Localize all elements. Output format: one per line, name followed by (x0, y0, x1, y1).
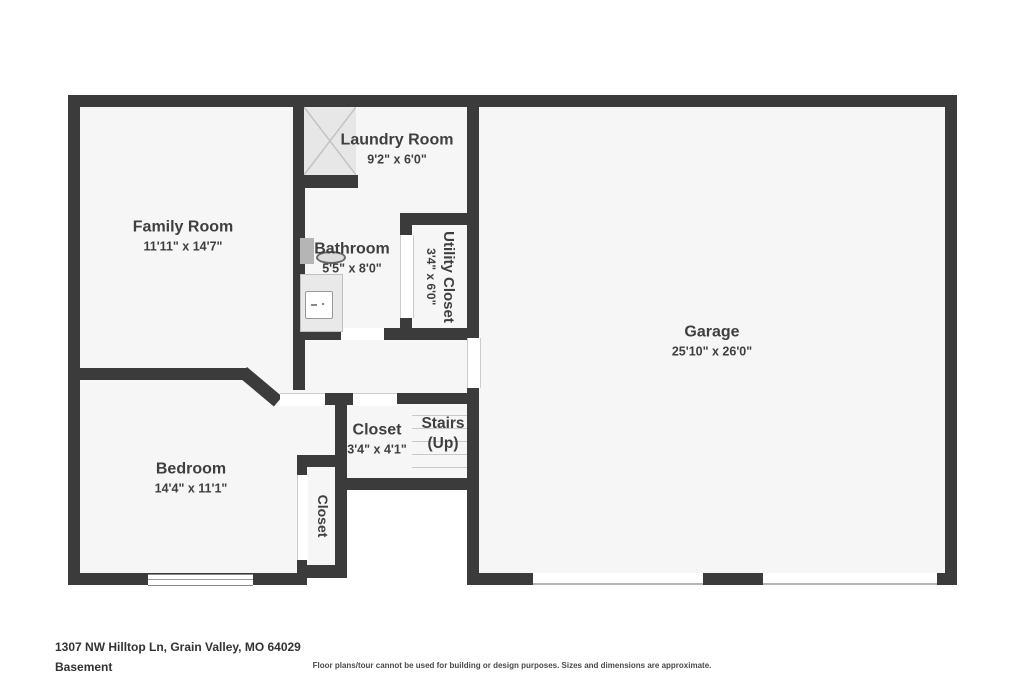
room-label-bedroom-closet: Closet (313, 495, 331, 538)
room-name: Laundry Room (341, 130, 454, 151)
room-label-stairs: Stairs (Up) (421, 414, 464, 454)
door-opening-closet (353, 393, 397, 406)
room-dims: 3'4" x 4'1" (347, 441, 407, 457)
room-label-bathroom: Bathroom 5'5" x 8'0" (314, 239, 390, 276)
room-label-bedroom: Bedroom 14'4" x 11'1" (155, 459, 228, 496)
door-opening-utility (400, 235, 414, 318)
sink-icon (305, 291, 333, 319)
stair-tread-line (412, 454, 467, 455)
room-name: Stairs (421, 414, 464, 434)
room-label-hall-closet: Closet 3'4" x 4'1" (347, 420, 407, 457)
garage-door-opening (533, 573, 703, 585)
level-name: Basement (55, 660, 112, 674)
floor-plan-page: Family Room 11'11" x 14'7" Laundry Room … (0, 0, 1024, 682)
window (148, 574, 253, 586)
room-dims: 9'2" x 6'0" (341, 151, 454, 167)
faucet-dot (322, 303, 324, 305)
room-name: Bathroom (314, 239, 390, 260)
room-dims: 3'4" x 6'0" (423, 231, 438, 323)
wall-segment (297, 565, 347, 578)
faucet-dot (311, 304, 317, 306)
door-opening-bedroom-closet (297, 475, 308, 560)
room-label-laundry: Laundry Room 9'2" x 6'0" (341, 130, 454, 167)
room-name: Family Room (133, 217, 233, 238)
room-dims: 11'11" x 14'7" (133, 238, 233, 254)
wall-segment (945, 95, 957, 585)
wall-segment (68, 95, 957, 107)
room-dims: 25'10" x 26'0" (672, 343, 752, 359)
room-label-utility-closet: Utility Closet 3'4" x 6'0" (423, 231, 457, 323)
disclaimer-text: Floor plans/tour cannot be used for buil… (313, 661, 712, 670)
room-label-garage: Garage 25'10" x 26'0" (672, 322, 752, 359)
wall-segment (68, 368, 247, 380)
door-opening-bedroom (280, 393, 325, 406)
wall-segment (335, 467, 347, 578)
stairs-direction: (Up) (421, 434, 464, 454)
window-glass-line (148, 579, 253, 580)
room-label-family-room: Family Room 11'11" x 14'7" (133, 217, 233, 254)
door-opening-garage (467, 338, 481, 388)
door-opening-bathroom (341, 328, 384, 340)
room-name: Utility Closet (438, 231, 457, 323)
room-name: Bedroom (155, 459, 228, 480)
address-text: 1307 NW Hilltop Ln, Grain Valley, MO 640… (55, 640, 301, 654)
room-dims: 14'4" x 11'1" (155, 480, 228, 496)
room-name: Garage (672, 322, 752, 343)
wall-segment (335, 478, 479, 490)
stair-tread-line (412, 467, 467, 468)
wall-segment (397, 393, 468, 404)
bathroom-counter (300, 238, 314, 264)
garage-door-opening (763, 573, 937, 585)
wall-segment (293, 175, 358, 188)
room-dims: 5'5" x 8'0" (314, 260, 390, 276)
wall-segment (68, 95, 80, 585)
vanity-counter (300, 274, 343, 332)
room-name: Closet (347, 420, 407, 441)
room-name: Closet (313, 495, 331, 538)
